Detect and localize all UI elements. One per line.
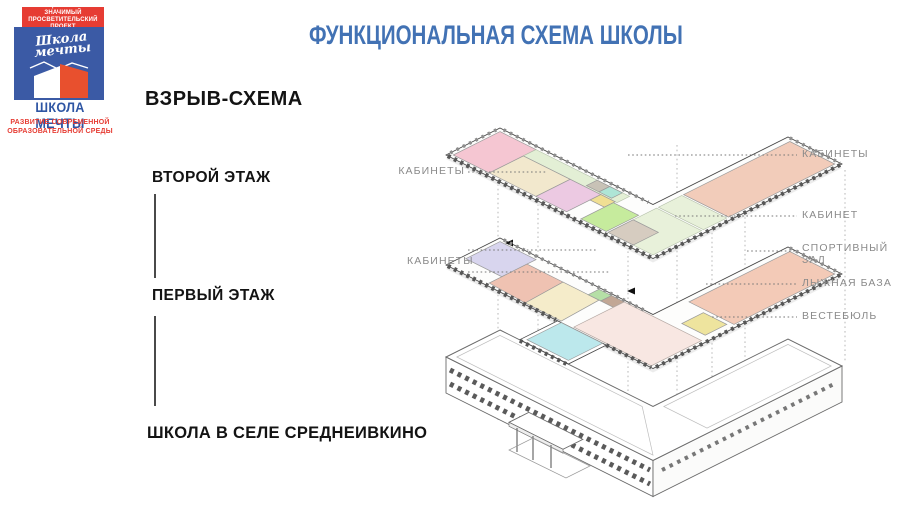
- label-cabinets-2f-left: КАБИНЕТЫ: [380, 166, 465, 178]
- label-cabinet-right: КАБИНЕТ: [802, 210, 858, 222]
- label-sport-hall: СПОРТИВНЫЙ ЗАЛ: [802, 243, 888, 266]
- label-sport-hall-line1: СПОРТИВНЫЙ: [802, 243, 888, 255]
- label-cabinets-1f-left: КАБИНЕТЫ: [407, 256, 492, 268]
- exploded-axonometric-diagram: [0, 0, 900, 506]
- slide: ОБЩЕСТВЕННО ЗНАЧИМЫЙ ПРОСВЕТИТЕЛЬСКИЙ ПР…: [0, 0, 900, 506]
- label-sport-hall-line2: ЗАЛ: [802, 255, 888, 267]
- label-vestibule: ВЕСТЕБЮЛЬ: [802, 311, 877, 323]
- label-ski-base: ЛЫЖНАЯ БАЗА: [802, 278, 892, 290]
- label-cabinets-right: КАБИНЕТЫ: [802, 149, 869, 161]
